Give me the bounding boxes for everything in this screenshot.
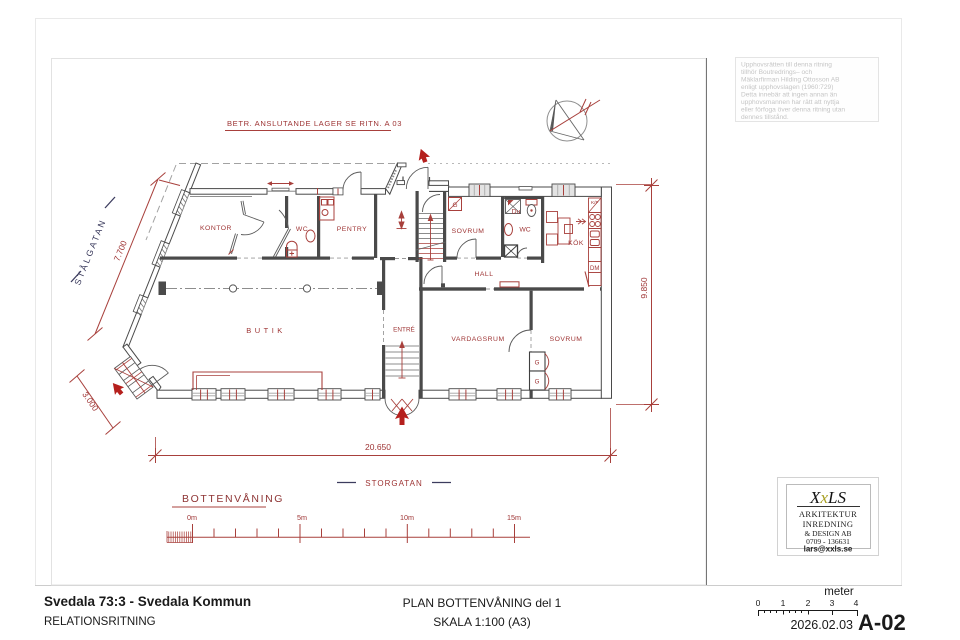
svg-text:Detta innebär att ingen annan: Detta innebär att ingen annan än [741, 92, 837, 99]
svg-text:enligt upphovslagen (1960:729): enligt upphovslagen (1960:729) [741, 84, 833, 91]
svg-text:KÖK: KÖK [568, 239, 584, 247]
svg-text:upphovsmannen har rätt att nyt: upphovsmannen har rätt att nyttja [741, 99, 840, 106]
svg-text:ENTRÉ: ENTRÉ [393, 325, 415, 334]
svg-text:K/F: K/F [591, 200, 599, 206]
svg-text:3: 3 [830, 598, 835, 608]
svg-text:5m: 5m [297, 513, 307, 522]
svg-text:WC: WC [519, 227, 530, 234]
svg-text:INREDNING: INREDNING [803, 519, 854, 529]
svg-text:10m: 10m [400, 513, 414, 522]
svg-text:G: G [535, 379, 540, 386]
svg-text:WC: WC [296, 226, 308, 233]
svg-text:dennes tillstånd.: dennes tillstånd. [741, 113, 789, 121]
svg-text:BETR. ANSLUTANDE LAGER SE: BETR. ANSLUTANDE LAGER SE RITN. A 03 [227, 119, 402, 128]
svg-text:A-02: A-02 [858, 610, 906, 635]
svg-text:DM: DM [590, 266, 599, 272]
svg-text:BOTTENVÅNING: BOTTENVÅNING [182, 492, 284, 505]
svg-text:lars@xxls.se: lars@xxls.se [804, 545, 853, 554]
svg-text:VARDAGSRUM: VARDAGSRUM [451, 336, 504, 343]
svg-text:meter: meter [824, 586, 854, 598]
svg-text:2026.02.03: 2026.02.03 [790, 618, 853, 632]
svg-text:0m: 0m [187, 513, 197, 522]
svg-text:9.850: 9.850 [639, 277, 649, 299]
svg-text:Du: Du [512, 209, 521, 216]
svg-text:RELATIONSRITNING: RELATIONSRITNING [44, 616, 156, 628]
svg-text:Mäklarfirman Hilding Ottosson: Mäklarfirman Hilding Ottosson AB [741, 77, 840, 84]
svg-text:1: 1 [781, 598, 786, 608]
svg-text:Svedala 73:3 - Svedala Kommun: Svedala 73:3 - Svedala Kommun [44, 594, 251, 609]
svg-text:eller förfoga över denna ritni: eller förfoga över denna ritning utan [741, 107, 845, 114]
svg-text:XxLS: XxLS [809, 488, 846, 507]
svg-text:SKALA 1:100 (A3): SKALA 1:100 (A3) [433, 615, 530, 629]
svg-text:SOVRUM: SOVRUM [550, 336, 583, 343]
svg-text:HALL: HALL [474, 271, 493, 278]
svg-text:Upphovsrätten till denna ritni: Upphovsrätten till denna ritning [741, 62, 832, 69]
svg-text:KONTOR: KONTOR [200, 225, 232, 232]
svg-text:ARKITEKTUR: ARKITEKTUR [799, 509, 857, 519]
svg-text:SOVRUM: SOVRUM [452, 228, 485, 235]
svg-text:G: G [535, 360, 540, 367]
svg-text:20.650: 20.650 [365, 442, 391, 452]
svg-text:15m: 15m [507, 513, 521, 522]
svg-text:4: 4 [854, 598, 859, 608]
svg-text:0: 0 [756, 598, 761, 608]
svg-text:BUTIK: BUTIK [246, 326, 286, 335]
svg-text:2: 2 [806, 598, 811, 608]
svg-text:tillhör Boutredrings– och: tillhör Boutredrings– och [741, 69, 812, 76]
svg-text:G: G [452, 202, 457, 209]
svg-text:PENTRY: PENTRY [337, 226, 367, 233]
svg-text:PLAN BOTTENVÅNING del 1: PLAN BOTTENVÅNING del 1 [403, 595, 562, 610]
svg-text:STORGATAN: STORGATAN [365, 479, 422, 488]
